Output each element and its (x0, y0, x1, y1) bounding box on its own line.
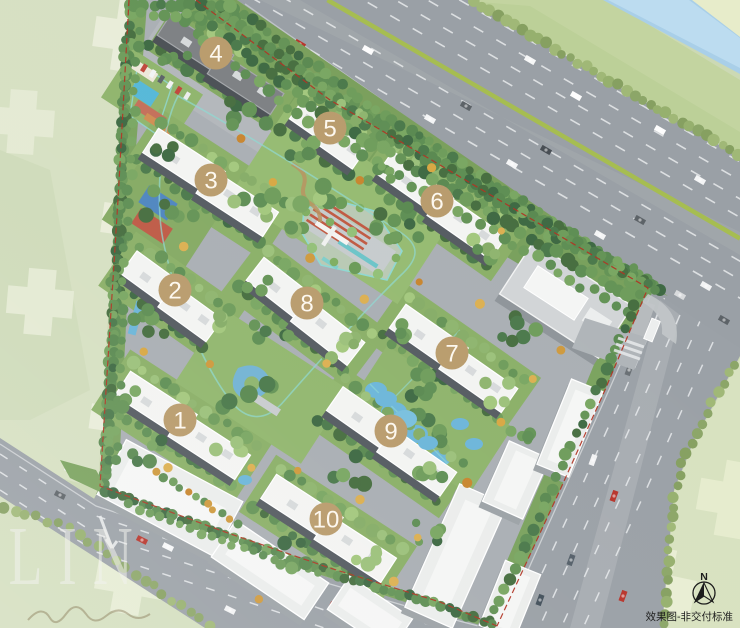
svg-text:N: N (700, 571, 708, 583)
svg-text:效果图-非交付标准: 效果图-非交付标准 (646, 610, 734, 623)
svg-text:LIN: LIN (9, 511, 149, 603)
